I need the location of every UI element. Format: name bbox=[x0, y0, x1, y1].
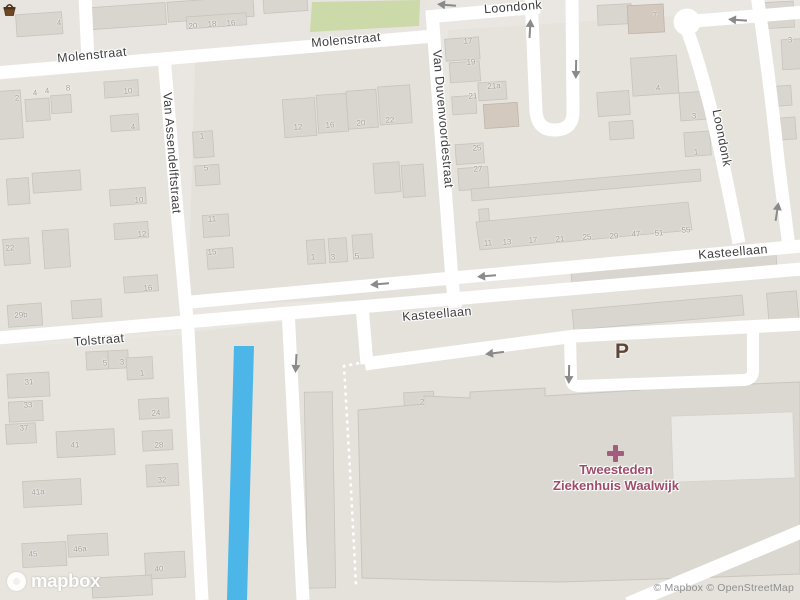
map-attribution[interactable]: © Mapbox © OpenStreetMap bbox=[653, 582, 794, 594]
parking-label: P bbox=[615, 340, 629, 364]
hospital-cross-icon bbox=[607, 445, 624, 462]
map-geometry bbox=[0, 0, 800, 600]
hospital-name-line1: Tweesteden bbox=[553, 462, 679, 478]
hospital-name-line2: Ziekenhuis Waalwijk bbox=[553, 478, 679, 494]
mapbox-logo-icon bbox=[7, 572, 26, 591]
shopping-basket-icon bbox=[0, 0, 19, 19]
mapbox-logo-text: mapbox bbox=[31, 570, 100, 592]
map-canvas[interactable]: MolenstraatMolenstraatLoondonkLoondonkVa… bbox=[0, 0, 800, 600]
hospital-label: Tweesteden Ziekenhuis Waalwijk bbox=[553, 462, 679, 494]
mapbox-logo[interactable]: mapbox bbox=[7, 570, 100, 592]
